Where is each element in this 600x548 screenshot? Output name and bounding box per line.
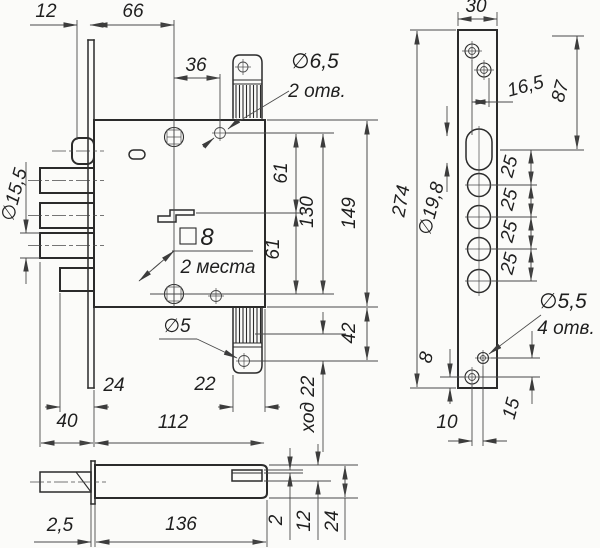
dim-25-1: 25 <box>497 153 523 180</box>
bottom-view-dimensions: 2 12 24 2,5 136 <box>34 444 358 547</box>
dim-22: 22 <box>193 374 216 395</box>
dim-16-5: 16,5 <box>505 72 547 102</box>
main-view-lock-body <box>28 40 265 388</box>
dim-130: 130 <box>297 196 318 228</box>
drawing-sheet: 12 66 36 ∅6,5 2 отв. ∅15,5 8 2 места ∅5 … <box>0 0 600 548</box>
dim-87: 87 <box>548 77 574 104</box>
technical-drawing: 12 66 36 ∅6,5 2 отв. ∅15,5 8 2 места ∅5 … <box>0 0 600 548</box>
side-view-faceplate <box>458 30 497 388</box>
dim-dia15-5: ∅15,5 <box>0 166 32 224</box>
dim-square-8: 8 <box>200 224 214 251</box>
side-view-dimensions: 30 16,5 87 274 ∅19,8 25 25 25 25 ∅5,5 4 … <box>388 0 594 446</box>
dim-24-bottom: 24 <box>322 510 343 532</box>
dim-112: 112 <box>158 412 189 433</box>
dim-30: 30 <box>465 0 487 17</box>
main-view-dimensions: 12 66 36 ∅6,5 2 отв. ∅15,5 8 2 места ∅5 … <box>0 1 378 452</box>
dim-25-3: 25 <box>497 218 523 245</box>
dim-10: 10 <box>436 412 458 433</box>
dim-25-4: 25 <box>497 250 523 277</box>
dim-136: 136 <box>165 514 197 535</box>
dim-dia19-8: ∅19,8 <box>415 180 449 238</box>
dim-24: 24 <box>102 375 124 396</box>
dim-36: 36 <box>185 55 207 76</box>
dim-61-bottom: 61 <box>263 238 284 259</box>
dim-61-top: 61 <box>271 162 292 183</box>
dim-42: 42 <box>339 322 360 344</box>
dim-2-5: 2,5 <box>46 515 74 536</box>
dim-12-bottom: 12 <box>294 510 315 532</box>
dim-dia5-5: ∅5,5 <box>539 290 587 313</box>
dim-25-2: 25 <box>497 186 523 213</box>
dim-66: 66 <box>122 1 144 22</box>
dim-dia5: ∅5 <box>163 316 191 337</box>
dim-12: 12 <box>35 1 57 22</box>
dim-40: 40 <box>56 411 78 432</box>
top-spring-ribs <box>236 85 261 118</box>
square-8-symbol <box>180 228 196 244</box>
dim-2-holes: 2 отв. <box>287 81 345 102</box>
dim-dia6-5: ∅6,5 <box>291 50 339 73</box>
dim-274: 274 <box>388 184 414 220</box>
dim-2-places: 2 места <box>180 257 256 278</box>
dim-2: 2 <box>266 514 287 526</box>
dim-149: 149 <box>339 197 360 229</box>
dim-stroke-22: ход 22 <box>298 375 319 433</box>
bottom-spring-ribs <box>236 308 261 343</box>
dim-8: 8 <box>415 349 438 365</box>
dim-4-holes: 4 отв. <box>537 318 594 339</box>
bottom-view <box>30 461 267 504</box>
dim-15: 15 <box>499 395 525 421</box>
